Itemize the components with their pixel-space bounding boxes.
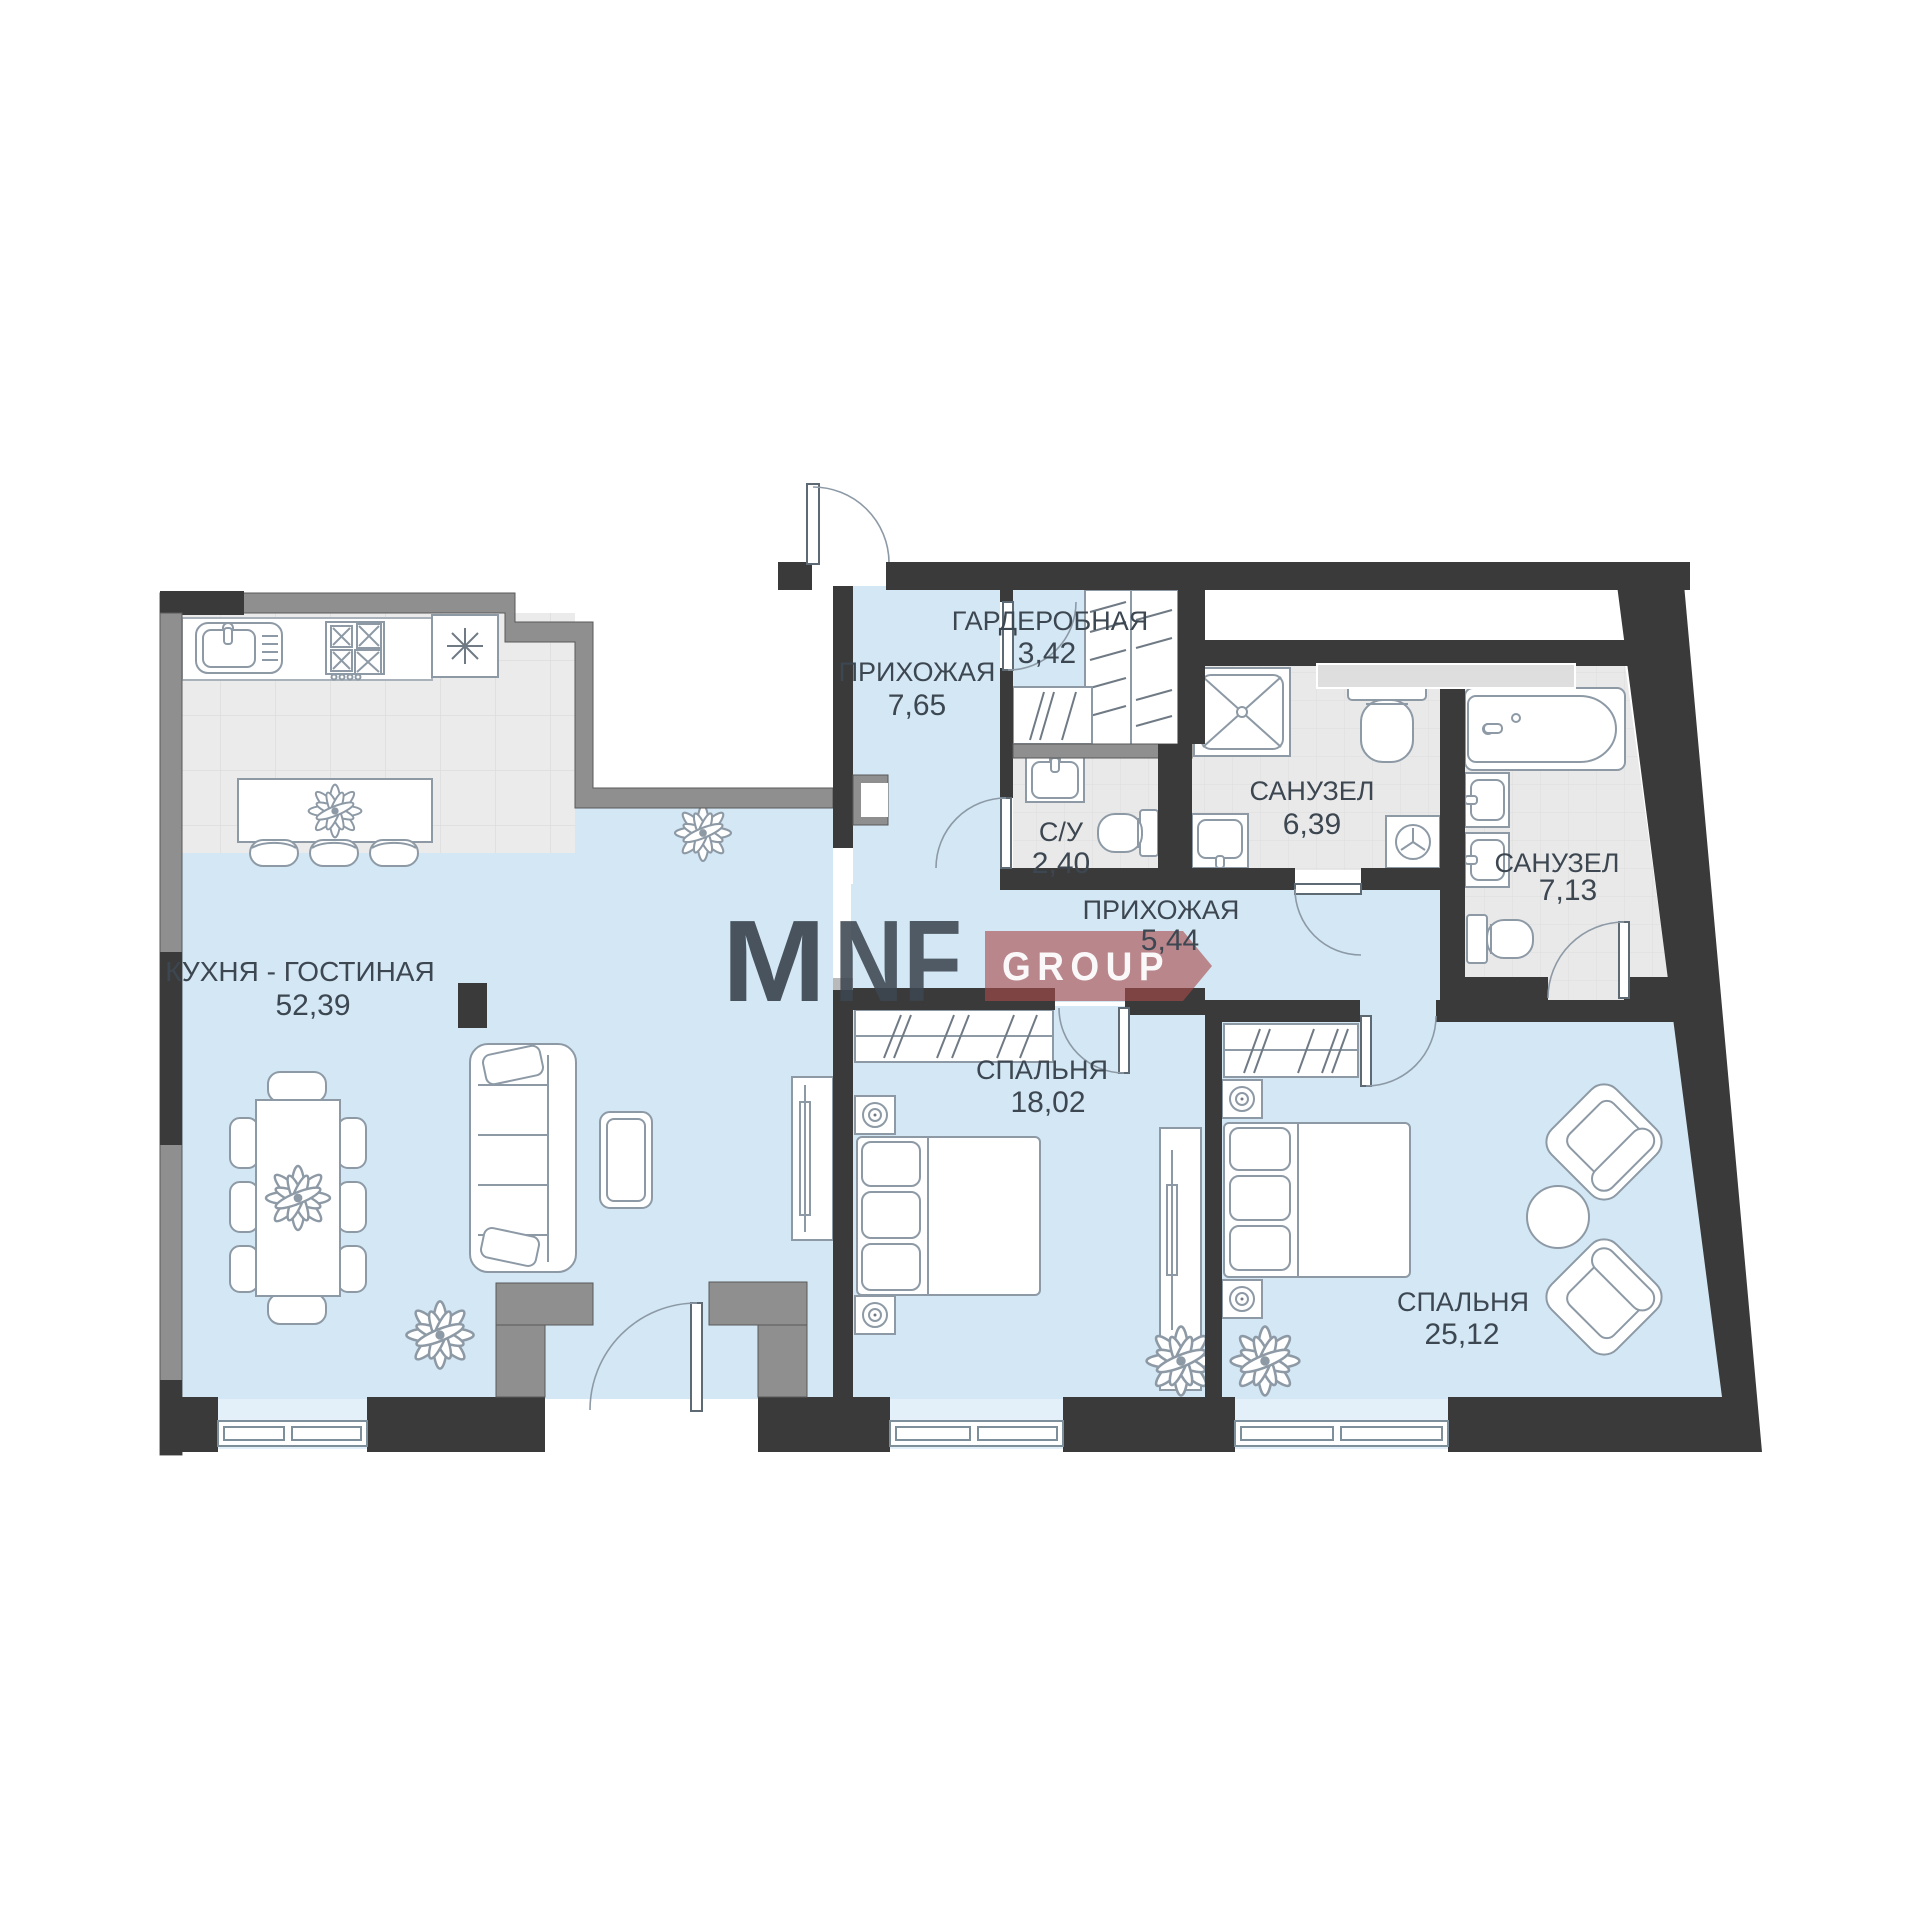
- washing-machine-icon: [1386, 816, 1440, 868]
- sink-icon: [1192, 814, 1248, 868]
- sink-icon: [1026, 754, 1084, 802]
- label-kitchen-living: КУХНЯ - ГОСТИНАЯ: [165, 956, 434, 987]
- nightstand-icon: [1222, 1080, 1262, 1118]
- nightstand-icon: [855, 1096, 895, 1134]
- area-hall-765: 7,65: [888, 689, 946, 722]
- tv-console-living: [792, 1077, 833, 1240]
- area-wc: 2,40: [1032, 847, 1090, 880]
- column: [458, 983, 487, 1028]
- kitchen-counter: [182, 615, 498, 680]
- label-bath-639: САНУЗЕЛ: [1249, 776, 1374, 806]
- bed-icon: [857, 1137, 1040, 1295]
- sink-icon: [1465, 773, 1509, 827]
- window: [218, 1399, 367, 1449]
- nightstand-icon: [855, 1296, 895, 1334]
- kitchen-island: [238, 779, 432, 866]
- window: [1235, 1399, 1448, 1449]
- label-wc: С/У: [1039, 817, 1084, 847]
- bar-stool-icon: [250, 840, 418, 866]
- nightstand-icon: [1222, 1280, 1262, 1318]
- area-bath-713: 7,13: [1539, 874, 1597, 907]
- floor-plan: M NF GROUP КУХНЯ - ГОСТИНАЯ 52,39 ПРИХОЖ…: [0, 0, 1920, 1920]
- plant-icon: [266, 1166, 330, 1230]
- coffee-table: [600, 1112, 652, 1208]
- area-bedroom1: 18,02: [1010, 1086, 1085, 1119]
- logo-m-icon: M: [722, 896, 826, 1026]
- plant-icon: [309, 785, 362, 838]
- area-bedroom2: 25,12: [1424, 1318, 1499, 1351]
- toilet-icon: [1467, 915, 1533, 963]
- area-bath-639: 6,39: [1283, 808, 1341, 841]
- area-kitchen-living: 52,39: [275, 989, 350, 1022]
- label-hall-544: ПРИХОЖАЯ: [1083, 895, 1240, 925]
- wardrobe: [1224, 1024, 1358, 1077]
- label-bedroom1: СПАЛЬНЯ: [976, 1055, 1108, 1085]
- label-bedroom2: СПАЛЬНЯ: [1397, 1287, 1529, 1317]
- shower-icon: [1194, 668, 1290, 756]
- sofa: [470, 1044, 576, 1272]
- floor-plan-page: M NF GROUP КУХНЯ - ГОСТИНАЯ 52,39 ПРИХОЖ…: [0, 0, 1920, 1920]
- logo-brand: NF: [834, 896, 962, 1026]
- kitchen-sink-icon: [196, 623, 282, 673]
- bed-icon: [1224, 1123, 1410, 1277]
- entry-door: [807, 484, 889, 564]
- area-hall-544: 5,44: [1141, 924, 1199, 957]
- label-wardrobe-room: ГАРДЕРОБНАЯ: [952, 606, 1148, 636]
- plant-icon: [675, 805, 731, 861]
- window: [890, 1399, 1063, 1449]
- stove-icon: [326, 622, 384, 680]
- label-hall-765: ПРИХОЖАЯ: [839, 657, 996, 687]
- duct-shelf: [1317, 664, 1575, 688]
- toilet-icon: [1098, 810, 1158, 856]
- area-wardrobe-room: 3,42: [1018, 637, 1076, 670]
- plant-icon: [406, 1301, 473, 1368]
- fridge-icon: [432, 615, 498, 677]
- plant-icon: [1231, 1327, 1300, 1396]
- bathtub-icon: [1465, 688, 1625, 770]
- round-table-icon: [1527, 1186, 1589, 1248]
